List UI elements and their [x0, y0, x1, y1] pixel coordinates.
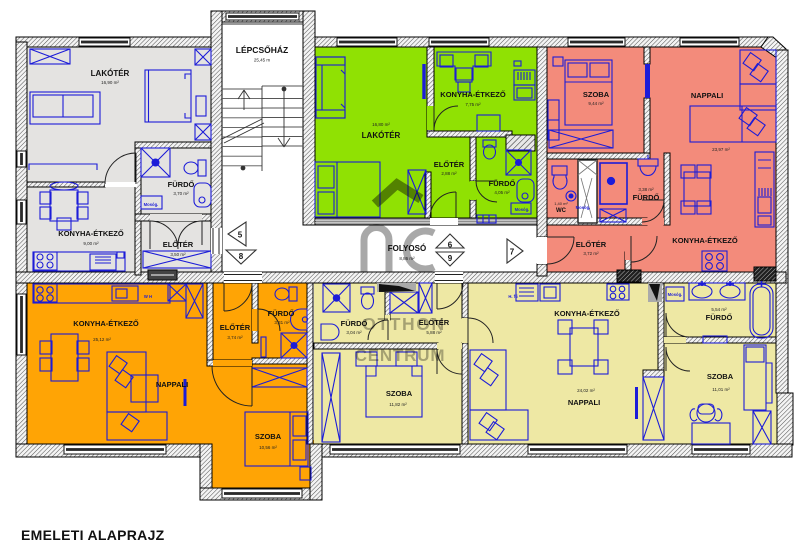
svg-text:1,40 m²: 1,40 m²: [554, 201, 568, 206]
svg-text:11,01 m²: 11,01 m²: [712, 387, 730, 392]
svg-text:6: 6: [448, 241, 453, 250]
svg-text:OTTHON: OTTHON: [362, 314, 445, 334]
svg-text:ELŐTÉR: ELŐTÉR: [576, 240, 607, 249]
svg-text:KONYHA-ÉTKEZŐ: KONYHA-ÉTKEZŐ: [672, 236, 738, 245]
svg-text:Mosóg.: Mosóg.: [668, 292, 683, 297]
svg-text:10,56 m²: 10,56 m²: [259, 445, 277, 450]
svg-text:3,38 m²: 3,38 m²: [638, 187, 654, 192]
svg-text:25,12 m²: 25,12 m²: [93, 337, 111, 342]
svg-text:24,02 m²: 24,02 m²: [577, 388, 595, 393]
svg-text:7,75 m²: 7,75 m²: [465, 102, 481, 107]
svg-text:16,80 m²: 16,80 m²: [372, 122, 390, 127]
svg-text:NAPPALI: NAPPALI: [568, 398, 600, 407]
svg-text:8: 8: [239, 252, 244, 261]
svg-text:KONYHA-ÉTKEZŐ: KONYHA-ÉTKEZŐ: [58, 229, 124, 238]
svg-text:WC: WC: [556, 208, 567, 214]
svg-text:3,50 m²: 3,50 m²: [170, 252, 186, 257]
svg-text:LAKÓTÉR: LAKÓTÉR: [91, 69, 130, 78]
svg-text:ELŐTÉR: ELŐTÉR: [220, 323, 251, 332]
svg-text:9,00 m²: 9,00 m²: [83, 241, 99, 246]
svg-text:25,45 m: 25,45 m: [254, 58, 271, 63]
svg-text:SZOBA: SZOBA: [386, 389, 413, 398]
svg-text:CENTRUM: CENTRUM: [355, 346, 446, 365]
svg-text:NAPPALI: NAPPALI: [691, 91, 723, 100]
svg-text:3,74 m²: 3,74 m²: [227, 335, 243, 340]
svg-text:4,05 m²: 4,05 m²: [494, 190, 510, 195]
svg-text:5: 5: [238, 231, 243, 240]
svg-text:H. fű: H. fű: [508, 294, 518, 299]
svg-text:KONYHA-ÉTKEZŐ: KONYHA-ÉTKEZŐ: [73, 319, 139, 328]
svg-text:W H: W H: [144, 294, 152, 299]
svg-text:LÉPCSŐHÁZ: LÉPCSŐHÁZ: [236, 44, 288, 55]
svg-text:SZOBA: SZOBA: [583, 90, 610, 99]
svg-text:ELŐTÉR: ELŐTÉR: [434, 160, 465, 169]
svg-text:FÜRDŐ: FÜRDŐ: [268, 309, 295, 318]
svg-text:3,72 m²: 3,72 m²: [583, 251, 599, 256]
svg-text:FÜRDŐ: FÜRDŐ: [706, 313, 733, 322]
svg-text:NAPPALI: NAPPALI: [156, 380, 188, 389]
svg-text:Mosóg.: Mosóg.: [515, 207, 530, 212]
svg-text:9,44 m²: 9,44 m²: [588, 101, 604, 106]
svg-text:EMELETI ALAPRAJZ: EMELETI ALAPRAJZ: [21, 527, 165, 543]
svg-text:3,31 m²: 3,31 m²: [274, 320, 290, 325]
svg-text:7: 7: [510, 248, 515, 257]
svg-text:2,88 m²: 2,88 m²: [441, 171, 457, 176]
svg-text:FÜRDŐ: FÜRDŐ: [633, 193, 660, 202]
svg-text:9: 9: [448, 254, 453, 263]
svg-text:SZOBA: SZOBA: [707, 372, 734, 381]
svg-text:3,70 m²: 3,70 m²: [173, 191, 189, 196]
svg-text:KONYHA-ÉTKEZŐ: KONYHA-ÉTKEZŐ: [554, 309, 620, 318]
svg-text:LAKÓTÉR: LAKÓTÉR: [362, 131, 401, 140]
svg-text:11,82 m²: 11,82 m²: [389, 402, 407, 407]
svg-text:FÜRDŐ: FÜRDŐ: [168, 180, 195, 189]
svg-text:KONYHA-ÉTKEZŐ: KONYHA-ÉTKEZŐ: [440, 90, 506, 99]
svg-text:FÜRDŐ: FÜRDŐ: [489, 179, 516, 188]
svg-text:16,90 m²: 16,90 m²: [101, 80, 119, 85]
svg-text:Mosóg.: Mosóg.: [576, 205, 591, 210]
svg-text:SZOBA: SZOBA: [255, 432, 282, 441]
svg-text:3,04 m²: 3,04 m²: [346, 330, 362, 335]
svg-text:23,97 m²: 23,97 m²: [712, 147, 730, 152]
svg-text:5,54 m²: 5,54 m²: [711, 307, 727, 312]
svg-text:Mosóg.: Mosóg.: [144, 202, 159, 207]
svg-text:ELŐTÉR: ELŐTÉR: [163, 240, 194, 249]
